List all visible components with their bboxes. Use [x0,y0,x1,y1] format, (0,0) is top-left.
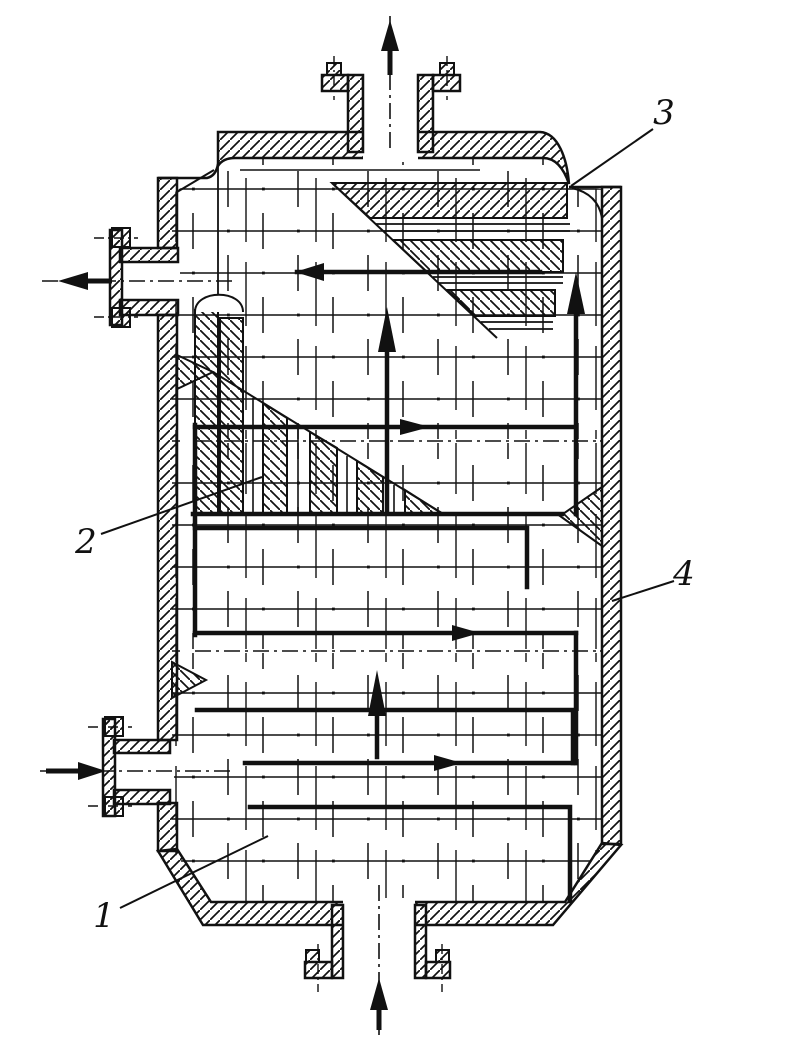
right-wall [602,187,621,844]
flange-bolt [306,950,319,962]
left-wall-lower [158,803,177,851]
part-label-3: 3 [653,93,675,133]
flange-tab [322,75,348,91]
vessel-cross-section-drawing: 1 2 3 4 [0,0,795,1057]
part-label-4: 4 [672,554,695,594]
technical-drawing-page: 1 2 3 4 [0,0,795,1057]
part-label-2: 2 [74,522,97,562]
leader-line-3 [571,129,653,186]
flange-tab [426,962,450,978]
left-wall-upper [158,178,177,248]
part-label-1: 1 [93,896,115,936]
